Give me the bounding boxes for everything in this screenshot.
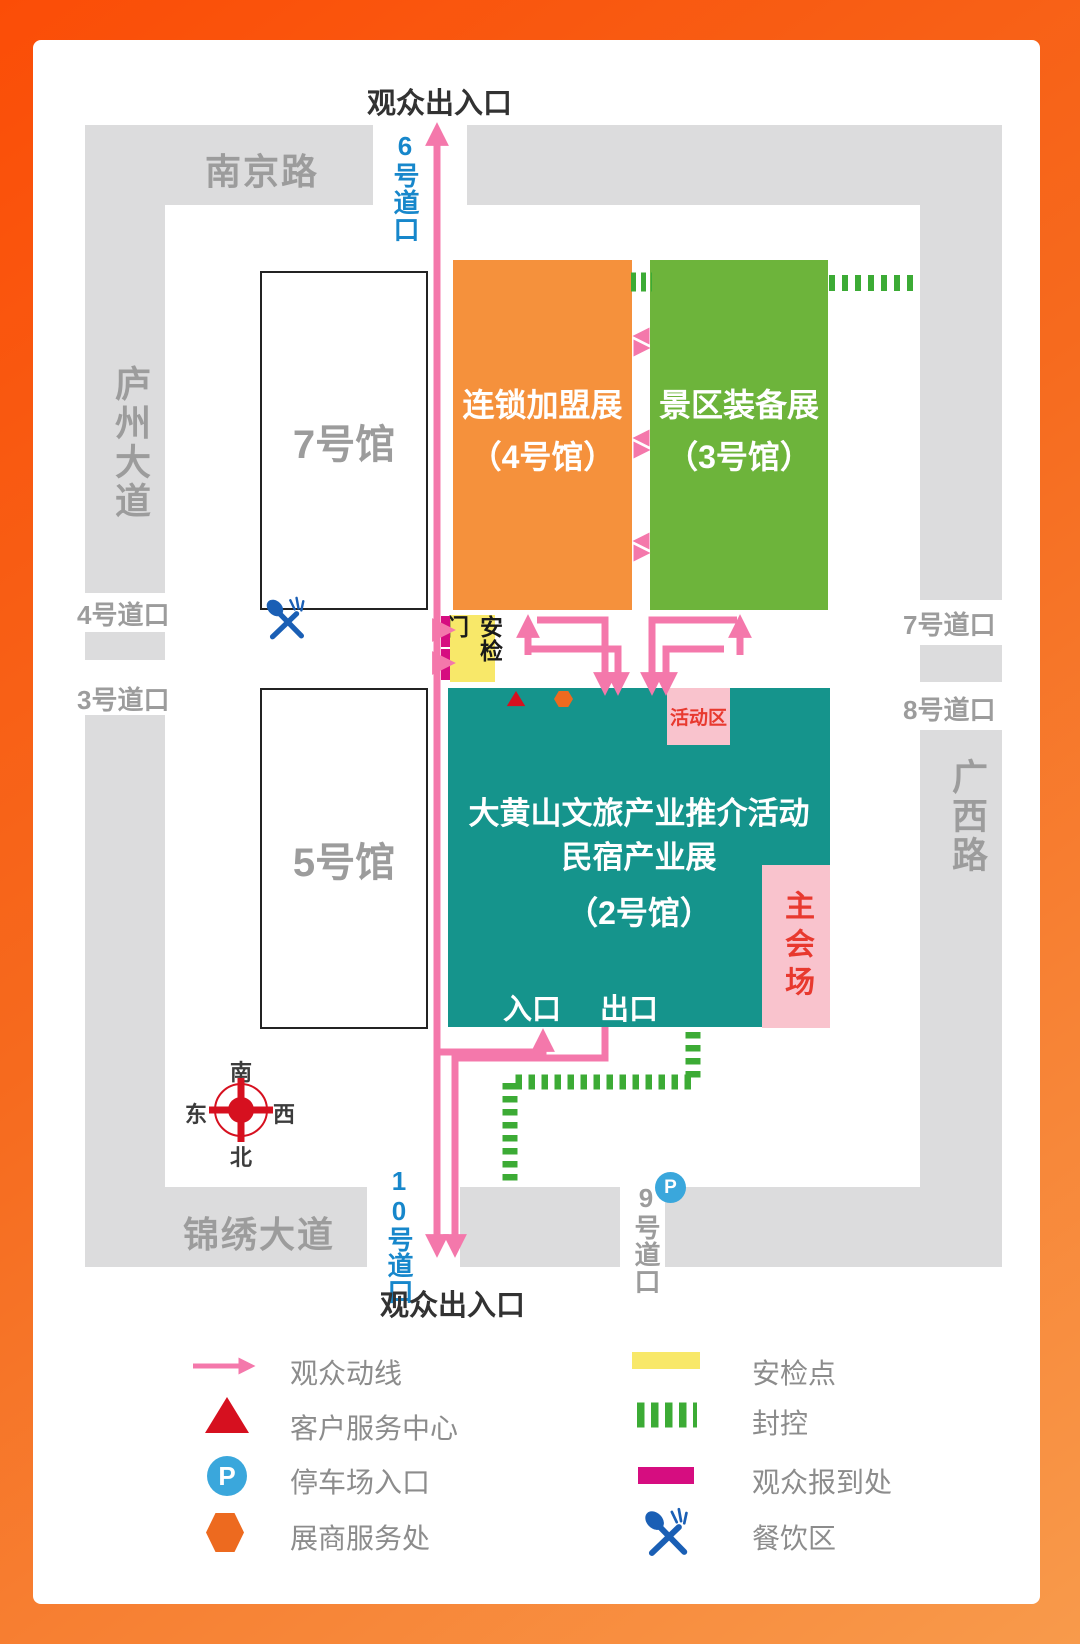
legend-label-customer-service: 客户服务中心	[290, 1407, 458, 1447]
parking-icon-map: P	[655, 1172, 686, 1203]
visitor-entrance-bottom-label: 观众出入口	[380, 1282, 525, 1324]
road-name-south: 锦绣大道	[183, 1206, 335, 1258]
legend-triangle-icon	[205, 1397, 249, 1433]
venue-map: 南京路 庐州大道 广西路 锦绣大道 4号道口 3号道口 7号道口 8号道口 9号…	[0, 0, 1080, 1644]
compass-east-label: 东	[185, 1097, 207, 1129]
compass-west-label: 西	[273, 1097, 295, 1129]
legend-label-exhibitor-service: 展商服务处	[290, 1517, 430, 1557]
legend-parking-icon: P	[207, 1456, 247, 1496]
hall-3-title: 景区装备展	[650, 380, 828, 426]
activity-area: 活动区	[667, 688, 730, 745]
gate-9-label: 9号道口	[628, 1183, 665, 1295]
legend-label-flow: 观众动线	[290, 1352, 402, 1392]
road-name-west: 庐州大道	[104, 365, 156, 521]
legend-label-dining: 餐饮区	[752, 1517, 836, 1557]
customer-service-triangle-icon	[507, 691, 525, 706]
road-west-segment-2	[85, 632, 165, 660]
hall-7: 7号馆	[260, 271, 428, 610]
gate-4-label: 4号道口	[77, 595, 169, 632]
legend-security-icon	[632, 1352, 700, 1369]
road-east-segment-2	[920, 645, 1002, 682]
activity-area-label: 活动区	[670, 703, 727, 730]
road-south-segment-3	[665, 1187, 1002, 1267]
legend-label-barrier: 封控	[752, 1402, 808, 1442]
hall-5: 5号馆	[260, 688, 428, 1029]
legend-checkin-icon	[638, 1467, 694, 1484]
legend-label-parking: 停车场入口	[290, 1461, 430, 1501]
hall-2-entrance-label: 入口	[503, 986, 561, 1028]
road-name-north: 南京路	[205, 143, 319, 195]
gate-8-label: 8号道口	[903, 690, 995, 727]
legend-dining-icon	[640, 1506, 694, 1560]
gate-6-label: 6号道口	[387, 131, 424, 243]
security-gate: 安检门	[450, 615, 495, 682]
road-west-segment-1	[85, 125, 165, 593]
road-name-east: 广西路	[941, 758, 993, 875]
road-north-east-segment	[467, 125, 1002, 205]
visitor-checkin-bar-top	[441, 616, 450, 647]
visitor-entrance-top-label: 观众出入口	[367, 80, 512, 122]
hall-2-title: 大黄山文旅产业推介活动	[448, 788, 830, 833]
road-east-segment-1	[920, 205, 1002, 600]
legend-label-checkin: 观众报到处	[752, 1461, 892, 1501]
gate-3-label: 3号道口	[77, 680, 169, 717]
road-south-segment-2	[460, 1187, 620, 1267]
hall-4-title: 连锁加盟展	[453, 380, 632, 426]
parking-letter: P	[664, 1177, 677, 1199]
hall-3: 景区装备展 （3号馆）	[650, 260, 828, 610]
hall-5-label: 5号馆	[293, 830, 395, 888]
gate-7-label: 7号道口	[903, 605, 995, 642]
hall-3-subtitle: （3号馆）	[650, 432, 828, 478]
hall-4-subtitle: （4号馆）	[453, 432, 632, 478]
road-west-segment-3	[85, 715, 165, 1267]
main-venue-area: 主会场	[762, 865, 830, 1028]
legend-parking-letter: P	[218, 1461, 235, 1492]
hall-4: 连锁加盟展 （4号馆）	[453, 260, 632, 610]
main-venue-label: 主会场	[774, 890, 818, 1004]
visitor-checkin-bar-bottom	[441, 649, 450, 680]
compass-north-label: 北	[230, 1140, 252, 1172]
hall-2-exit-label: 出口	[600, 986, 658, 1028]
dining-icon-map	[262, 595, 310, 643]
hall-7-label: 7号馆	[293, 412, 395, 470]
compass-south-label: 南	[230, 1055, 252, 1087]
legend-label-security: 安检点	[752, 1352, 836, 1392]
